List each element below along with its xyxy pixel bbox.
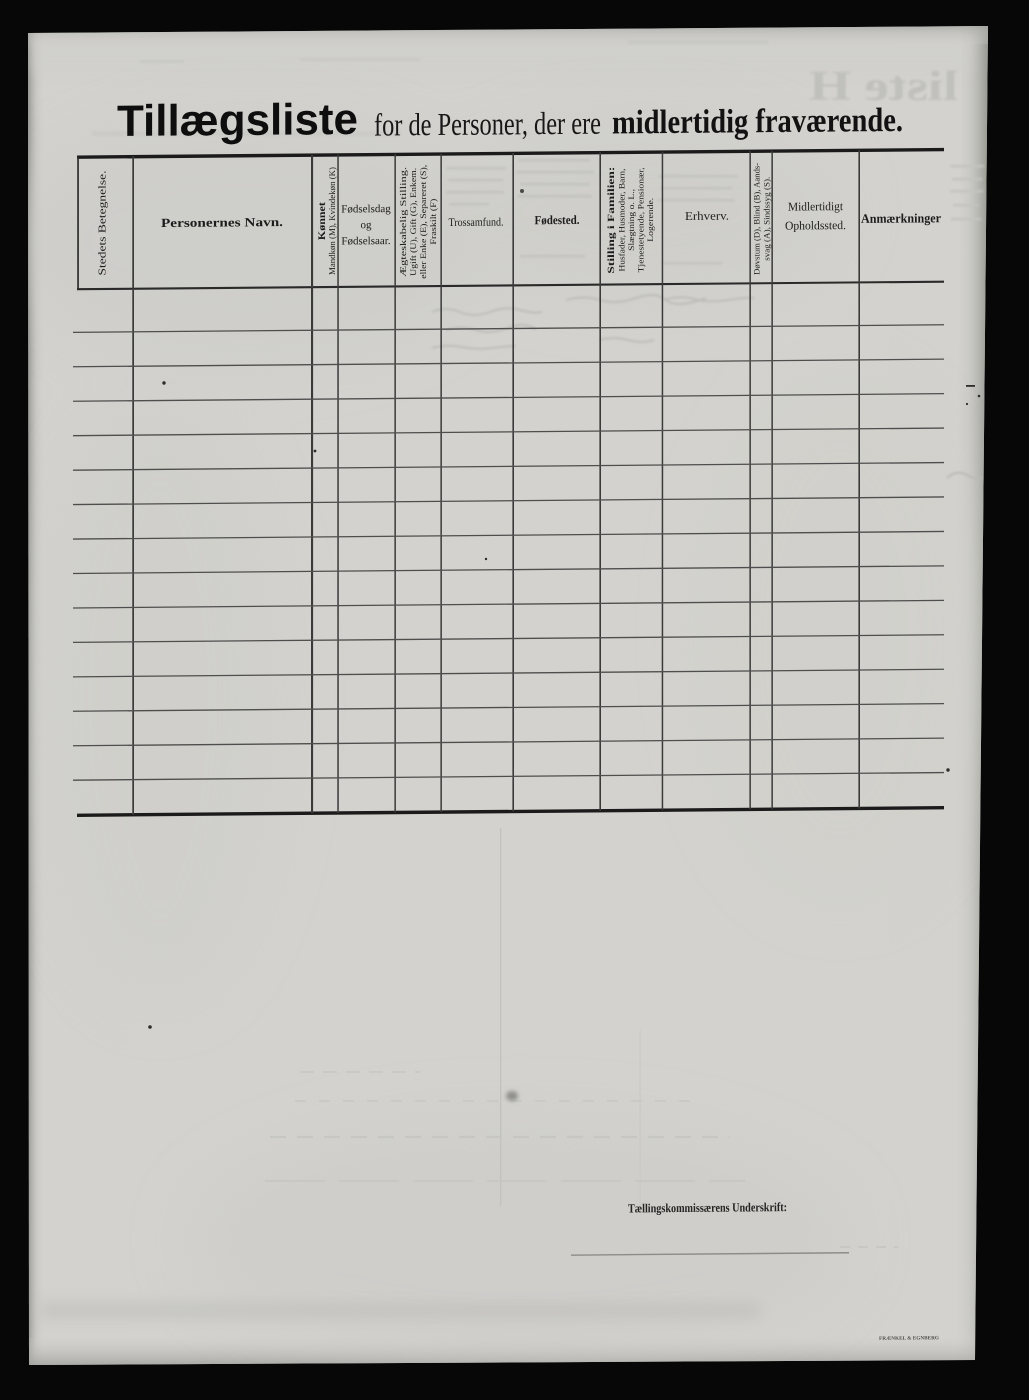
svg-text:svag (A), Sindssyg (S).: svag (A), Sindssyg (S).: [763, 177, 772, 261]
svg-text:Slægtning o. L.,: Slægtning o. L.,: [627, 189, 636, 251]
svg-text:Fraskilt (F): Fraskilt (F): [428, 198, 438, 244]
svg-text:Stedets Betegnelse.: Stedets Betegnelse.: [98, 171, 109, 276]
svg-text:Døvstum (D), Blind (B), Aands-: Døvstum (D), Blind (B), Aands-: [753, 163, 762, 275]
svg-text:Logerende.: Logerende.: [646, 198, 655, 242]
svg-text:Husfader, Husmoder, Barn,: Husfader, Husmoder, Barn,: [618, 168, 627, 271]
svg-text:Midlertidigt: Midlertidigt: [788, 199, 844, 213]
svg-text:Trossamfund.: Trossamfund.: [449, 217, 504, 229]
svg-text:Opholdssted.: Opholdssted.: [785, 218, 846, 233]
svg-text:Personernes Navn.: Personernes Navn.: [161, 215, 283, 230]
svg-text:Ugift (U), Gift (G), Enkem.: Ugift (U), Gift (G), Enkem.: [408, 168, 418, 276]
svg-text:Tjenestetyende, Pensionær,: Tjenestetyende, Pensionær,: [637, 167, 646, 272]
svg-text:Anmærkninger: Anmærkninger: [861, 210, 941, 226]
svg-text:Fødselsdag: Fødselsdag: [341, 203, 391, 215]
svg-text:Stilling i Familien:: Stilling i Familien:: [607, 167, 617, 274]
svg-text:Fødested.: Fødested.: [535, 213, 580, 227]
svg-text:Mandkøn (M), Kvindekøn (K): Mandkøn (M), Kvindekøn (K): [327, 167, 337, 275]
svg-text:Ægteskabelig Stilling.: Ægteskabelig Stilling.: [398, 167, 408, 277]
svg-text:Tællingskommissærens Underskr: Tællingskommissærens Underskrift:: [628, 1200, 787, 1215]
svg-text:Tillægsliste: Tillægsliste: [117, 95, 358, 146]
svg-text:og: og: [361, 219, 372, 231]
svg-text:Fødselsaar.: Fødselsaar.: [341, 235, 390, 247]
svg-text:FRÆNKEL & EGNBERG: FRÆNKEL & EGNBERG: [879, 1336, 939, 1342]
svg-text:Erhverv.: Erhverv.: [685, 209, 729, 223]
svg-text:eller Enke (E), Separeret (S),: eller Enke (E), Separeret (S),: [418, 165, 428, 279]
svg-text:for de Personer, der ere: for de Personer, der ere: [374, 105, 601, 143]
svg-text:liste H: liste H: [809, 64, 958, 110]
